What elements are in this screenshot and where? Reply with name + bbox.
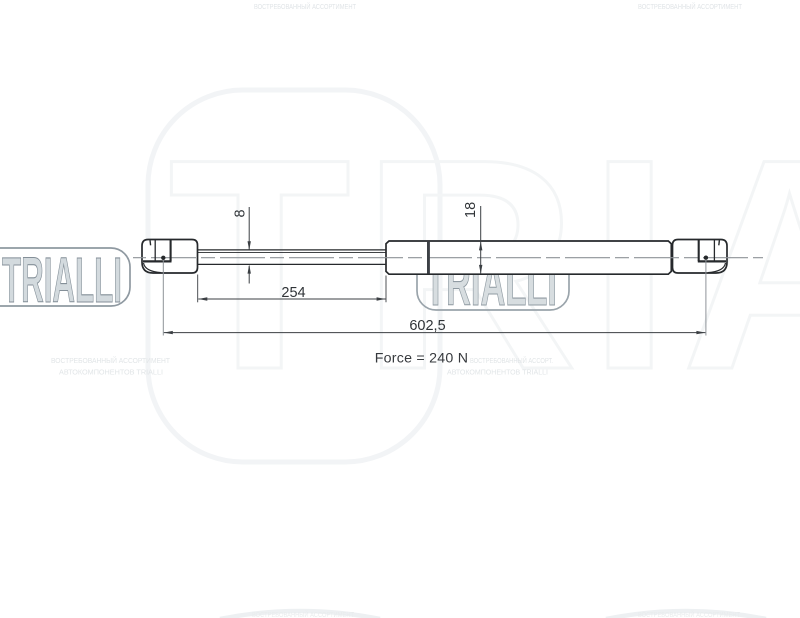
svg-text:ВОСТРЕБОВАННЫЙ АССОРТИМЕНТ: ВОСТРЕБОВАННЫЙ АССОРТИМЕНТ <box>254 2 356 11</box>
svg-text:ВОСТРЕБОВАННЫЙ АССОРТИМЕНТ: ВОСТРЕБОВАННЫЙ АССОРТИМЕНТ <box>638 2 742 11</box>
svg-text:ВОСТРЕБОВАННЫЙ АССОРТИМЕНТ: ВОСТРЕБОВАННЫЙ АССОРТИМЕНТ <box>252 610 354 618</box>
svg-text:18: 18 <box>463 202 479 218</box>
svg-text:TRIALLI: TRIALLI <box>2 244 122 316</box>
svg-text:ВОСТРЕБОВАННЫЙ АССОРТИМЕНТ: ВОСТРЕБОВАННЫЙ АССОРТИМЕНТ <box>51 356 170 365</box>
svg-text:Force = 240 N: Force = 240 N <box>375 351 469 367</box>
svg-text:8: 8 <box>232 209 248 217</box>
svg-text:АВТОКОМПОНЕНТОВ TRIALLI: АВТОКОМПОНЕНТОВ TRIALLI <box>447 368 548 377</box>
svg-text:АВТОКОМПОНЕНТОВ TRIALLI: АВТОКОМПОНЕНТОВ TRIALLI <box>59 368 163 377</box>
svg-text:ВОСТРЕБОВАННЫЙ АССОРТ.: ВОСТРЕБОВАННЫЙ АССОРТ. <box>470 356 553 365</box>
svg-text:602,5: 602,5 <box>409 318 445 334</box>
svg-text:254: 254 <box>281 285 305 301</box>
svg-text:ВОСТРЕБОВАННЫЙ АССОРТИМЕНТ: ВОСТРЕБОВАННЫЙ АССОРТИМЕНТ <box>638 610 740 618</box>
